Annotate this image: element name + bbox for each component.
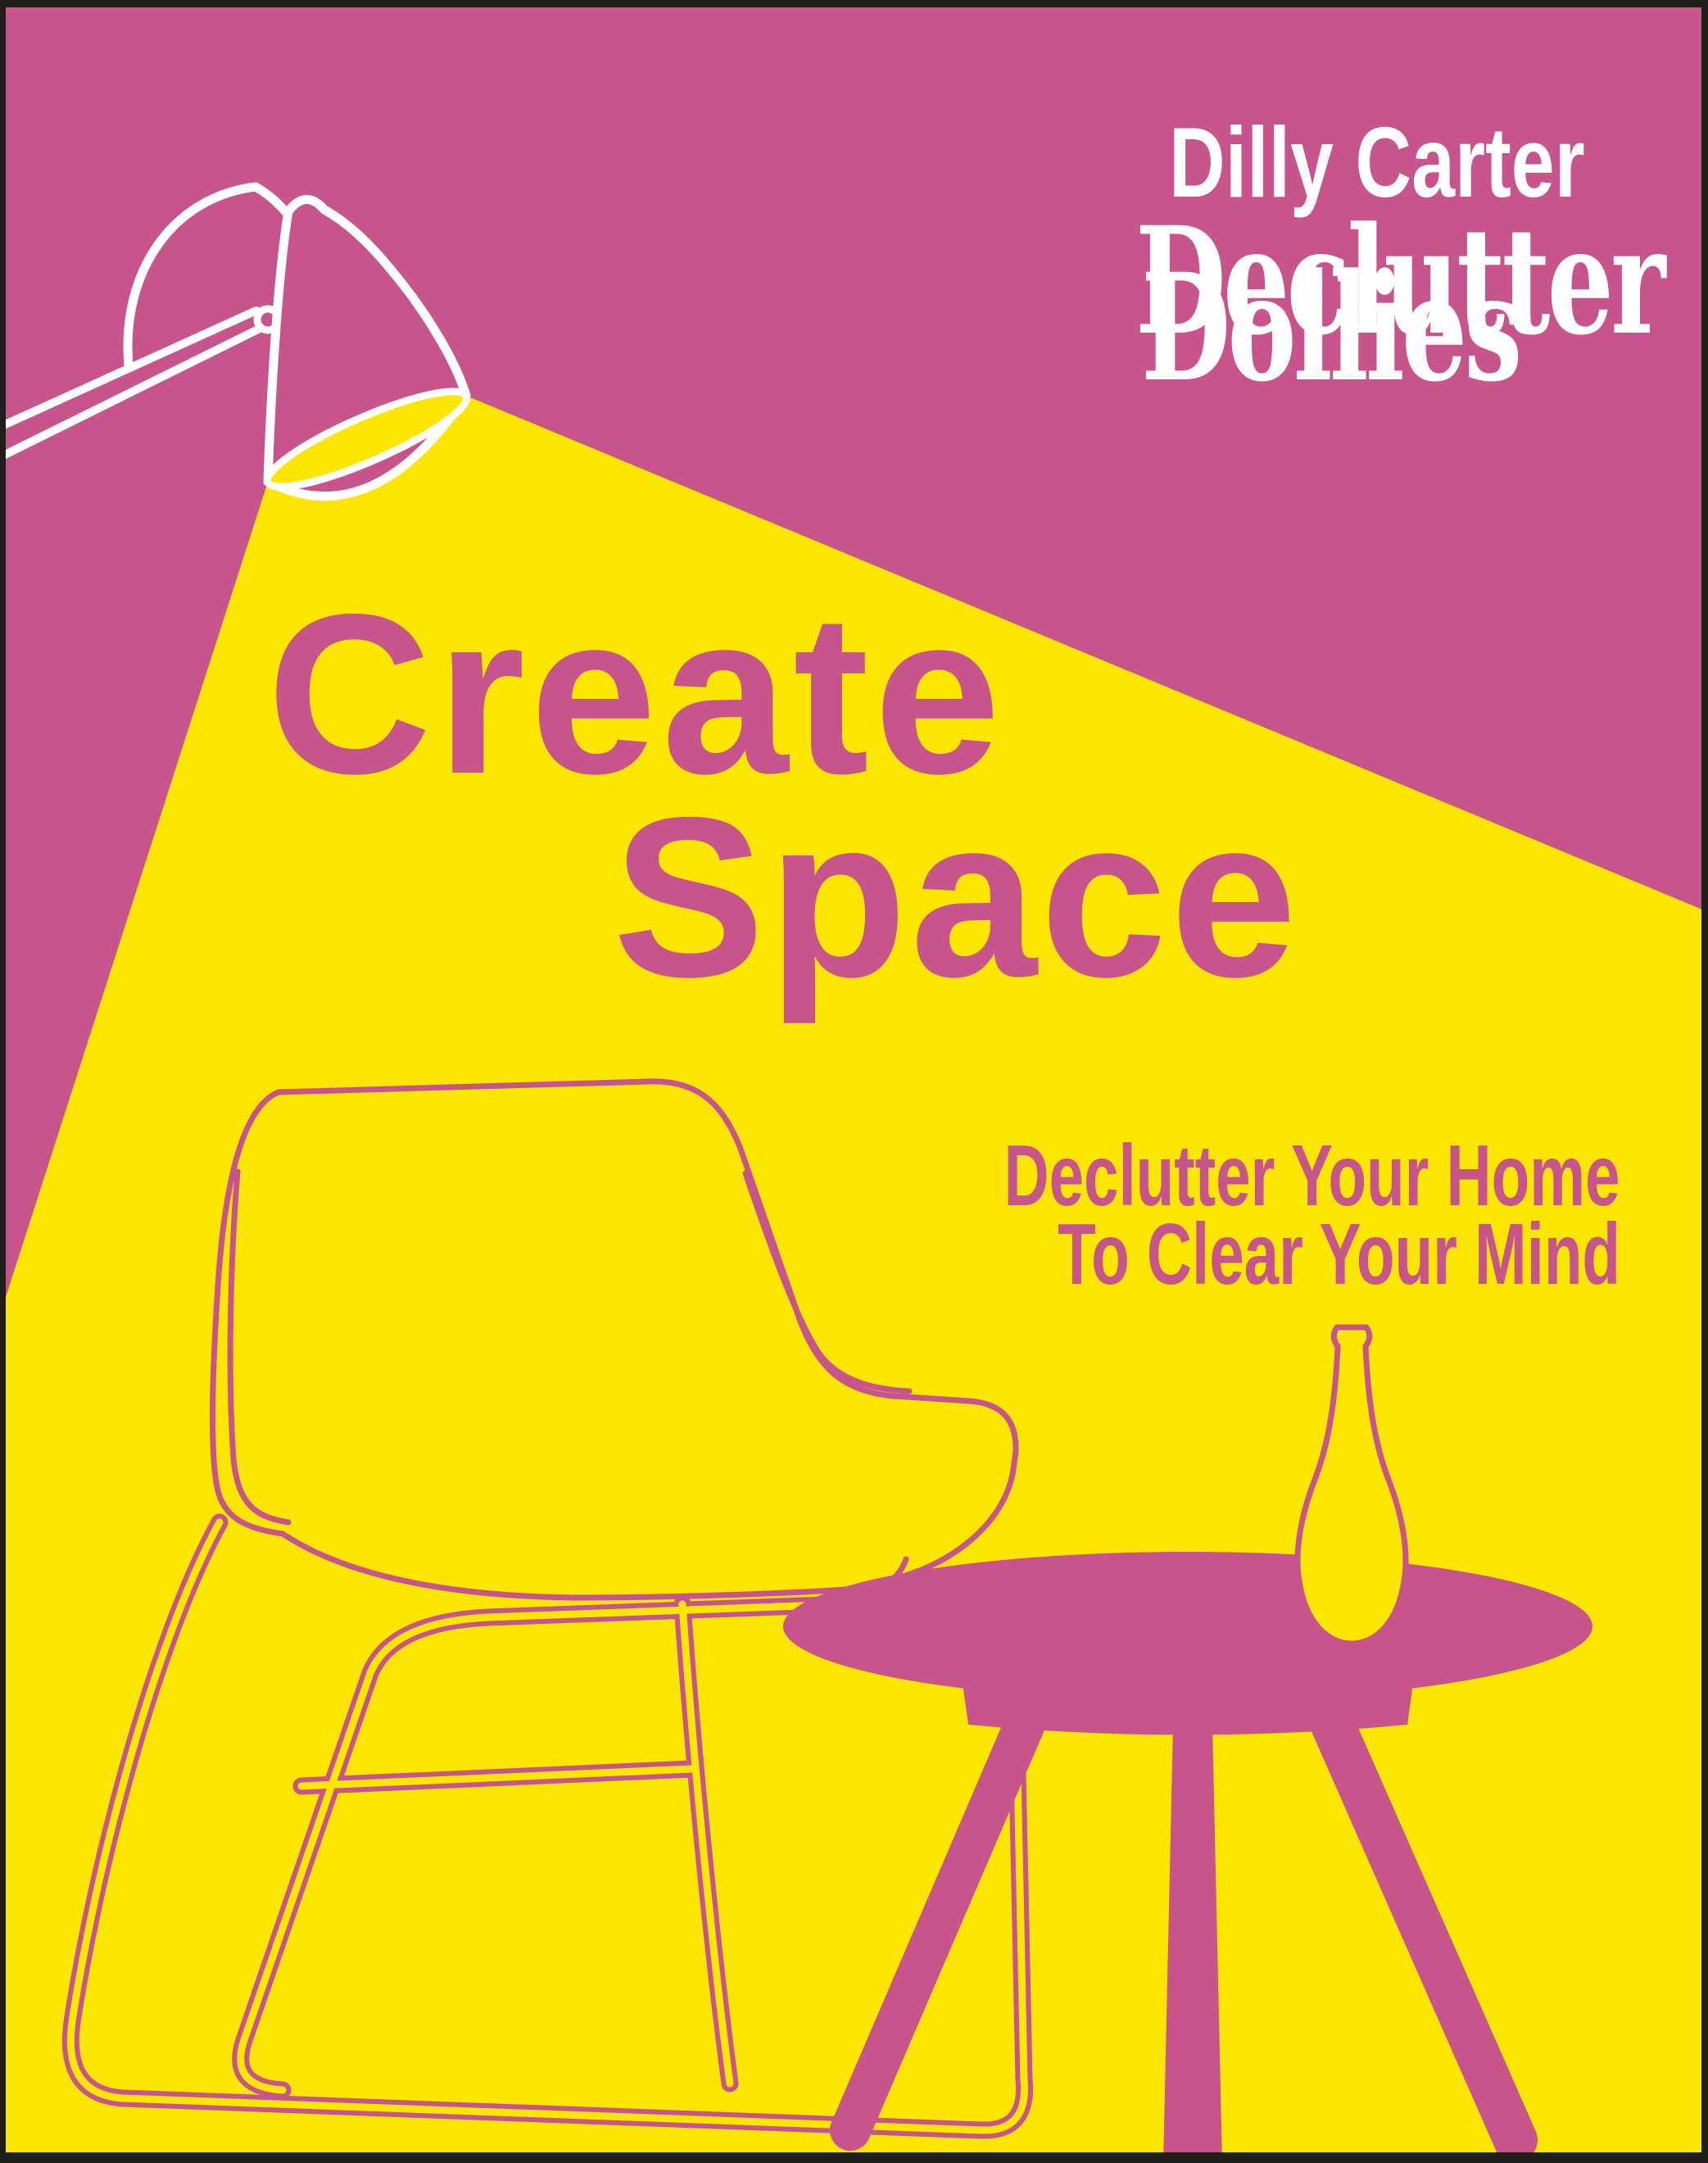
cover-edge-top [0,0,1708,7]
cover-edge-left [0,0,6,2163]
subtitle-line2: To Clear Your Mind [1058,1211,1620,1298]
book-title-line2: Space [613,783,1300,1011]
table-top [783,1552,1592,1701]
cover-edge-bottom [0,2152,1708,2163]
book-cover: Dilly Carter Declutter Dollies Create Sp… [0,0,1708,2163]
brand-logo-line2: Dollies [1141,255,1520,402]
table-center-leg [1163,1725,1222,2163]
cover-edge-right [1701,0,1708,2163]
